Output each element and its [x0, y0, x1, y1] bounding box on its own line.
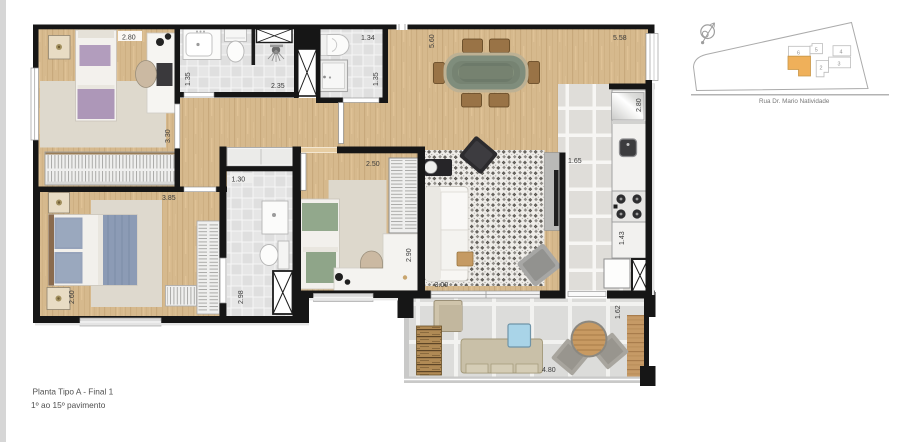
- svg-text:2.80: 2.80: [636, 98, 643, 112]
- svg-text:2.98: 2.98: [238, 290, 245, 304]
- svg-text:Planta Tipo A - Final 1: Planta Tipo A - Final 1: [33, 387, 114, 397]
- svg-text:2.90: 2.90: [406, 248, 413, 262]
- svg-text:5: 5: [815, 48, 818, 54]
- svg-text:2: 2: [820, 66, 823, 72]
- svg-text:5.60: 5.60: [429, 34, 436, 48]
- svg-text:1º ao 15º pavimento: 1º ao 15º pavimento: [31, 400, 106, 410]
- svg-text:6: 6: [797, 50, 800, 56]
- svg-text:1.30: 1.30: [232, 177, 246, 184]
- svg-text:1.62: 1.62: [615, 305, 622, 319]
- svg-text:Rua Dr. Mario Natividade: Rua Dr. Mario Natividade: [759, 98, 830, 105]
- svg-text:2.50: 2.50: [366, 161, 380, 168]
- svg-text:2.60: 2.60: [69, 290, 76, 304]
- svg-text:3.85: 3.85: [162, 195, 176, 202]
- svg-text:2.80: 2.80: [122, 35, 136, 42]
- svg-text:1.43: 1.43: [619, 231, 626, 245]
- svg-text:1.34: 1.34: [361, 35, 375, 42]
- svg-text:2.35: 2.35: [271, 83, 285, 90]
- svg-text:5.58: 5.58: [613, 35, 627, 42]
- svg-text:1.35: 1.35: [373, 72, 380, 86]
- svg-text:3.30: 3.30: [165, 129, 172, 143]
- svg-text:4.80: 4.80: [542, 367, 556, 374]
- svg-text:3: 3: [838, 61, 841, 67]
- svg-text:1.65: 1.65: [568, 158, 582, 165]
- svg-text:1.35: 1.35: [185, 72, 192, 86]
- svg-text:4: 4: [840, 50, 843, 56]
- svg-text:3.00: 3.00: [435, 282, 449, 289]
